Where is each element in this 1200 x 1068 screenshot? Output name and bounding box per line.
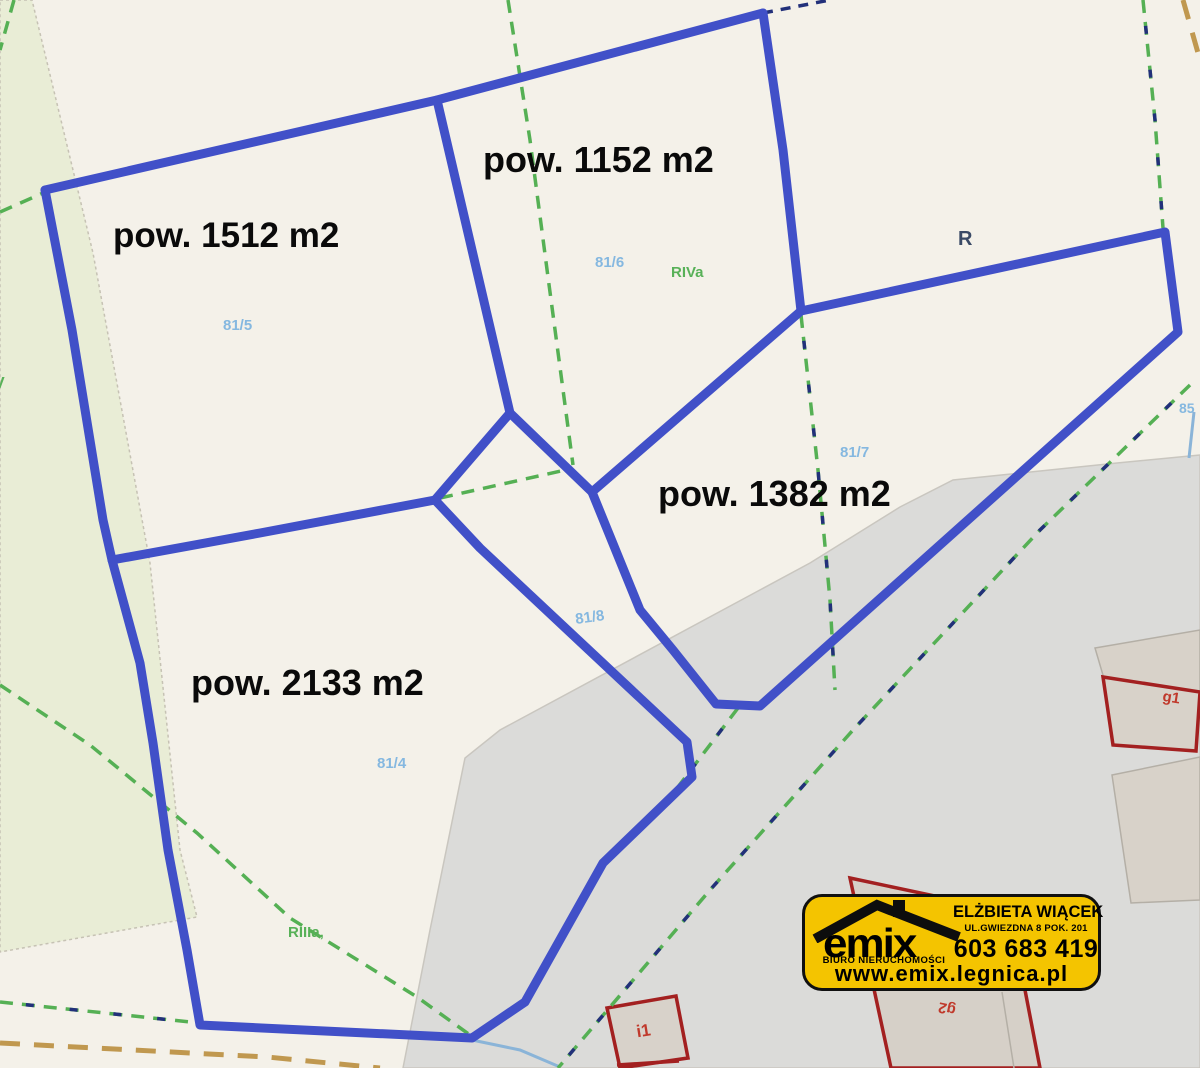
logo-website: www.emix.legnica.pl xyxy=(805,961,1098,987)
soil-class-r: R xyxy=(958,228,973,250)
building-label-g1: g1 xyxy=(1161,688,1181,708)
parcel-number-81-7: 81/7 xyxy=(840,444,869,461)
building-label-i1: i1 xyxy=(635,1020,652,1041)
logo-phone-number: 603 683 419 xyxy=(951,935,1101,964)
boundary-navy-top xyxy=(763,0,830,13)
outline-1152-right-border xyxy=(763,13,801,311)
logo-agent-name: ELŻBIETA WIĄCEK xyxy=(953,903,1099,922)
soil-class-riva: RIVa xyxy=(671,264,704,281)
parcel-number-81-5: 81/5 xyxy=(223,317,252,334)
light-blue-line-right-edge xyxy=(1189,412,1194,458)
area-label-1382: pow. 1382 m2 xyxy=(658,473,891,514)
dirt-road-top-right xyxy=(1183,0,1200,60)
building-label-g2: g2 xyxy=(937,998,958,1018)
area-label-2133: pow. 2133 m2 xyxy=(191,662,424,703)
outline-kite-left-edge xyxy=(435,413,510,500)
logo-address: UL.GWIEZDNA 8 POK. 201 xyxy=(953,923,1099,934)
area-label-1152: pow. 1152 m2 xyxy=(483,139,714,180)
area-label-1512: pow. 1512 m2 xyxy=(113,216,339,255)
soil-class-v: V xyxy=(0,375,5,392)
dirt-road-bottom-left xyxy=(0,1043,380,1068)
parcel-number-81-4: 81/4 xyxy=(377,755,407,772)
outline-1512-bottom-border xyxy=(112,500,435,560)
parcel-number-85: 85 xyxy=(1179,400,1195,416)
outline-kite-right-edge xyxy=(510,413,592,492)
soil-class-riiia: RIIIa, xyxy=(288,924,324,941)
emix-watermark: emix BIURO NIERUCHOMOŚCI ELŻBIETA WIĄCEK… xyxy=(802,894,1101,991)
building-g1 xyxy=(1103,677,1200,751)
parcel-number-81-8: 81/8 xyxy=(574,607,605,628)
cadastral-map: pow. 1512 m2 pow. 1152 m2 pow. 1382 m2 p… xyxy=(0,0,1200,1068)
parcel-number-81-6: 81/6 xyxy=(595,254,624,271)
